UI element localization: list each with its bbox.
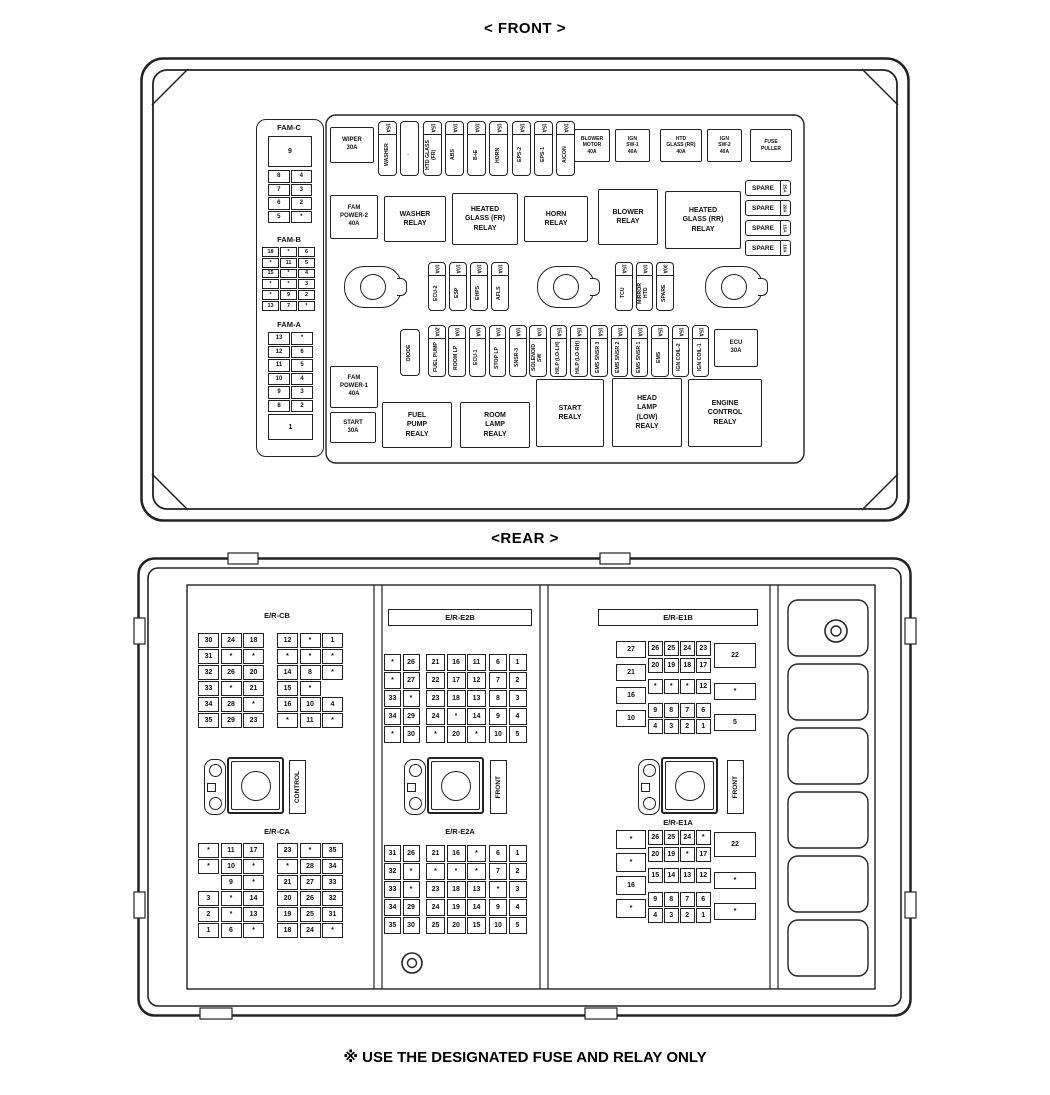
fuse: 15AHTD GLASS (FR) — [423, 121, 442, 176]
pin-cell: 9 — [489, 708, 507, 725]
fuse: 10AEMS SNSR 1 — [631, 325, 649, 377]
pin-cell: 34 — [384, 899, 401, 916]
grid-row: 33* — [384, 881, 420, 898]
pin-cell: 20 — [243, 665, 264, 680]
er-e1a-col-right: 22** — [714, 832, 756, 920]
fuse-amp: 15A — [424, 122, 441, 135]
pin-cell: * — [291, 332, 313, 345]
er-e2a-label: E/R-E2A — [388, 827, 532, 836]
fuse: 15AWASHER — [378, 121, 397, 176]
fuse-label: DIODE — [407, 330, 413, 375]
pin-cell: 21 — [426, 845, 445, 862]
fuse: 10AECU-1 — [469, 325, 487, 377]
blower-motor-fuse-box: BLOWER MOTOR 40A — [574, 129, 610, 162]
er-e2a-grid-2: 2116****231813241914252015 — [426, 845, 486, 934]
pin-cell: * — [384, 726, 401, 743]
pin-cell: 17 — [243, 843, 264, 858]
pin-cell: 11 — [221, 843, 242, 858]
grid-row: *1117 — [198, 843, 264, 858]
grid-row: 33*21 — [198, 681, 264, 696]
fuse-amp: 10A — [637, 263, 653, 276]
fuse-amp: 15A — [551, 326, 567, 339]
fuse: · — [400, 121, 419, 176]
spare-amp: 10A — [780, 241, 790, 255]
fam-c-big-cell: 9 — [268, 136, 312, 167]
fuse-label: SPARE — [662, 276, 668, 310]
bracket-hole-icon — [409, 764, 422, 777]
pin-cell: * — [384, 654, 401, 671]
pin-cell: 10 — [268, 373, 290, 386]
fuse-label: ECU-1 — [474, 339, 480, 376]
grid-row: 3530 — [384, 917, 420, 934]
er-e1a-label: E/R-E1A — [598, 818, 758, 827]
pin-cell: 16 — [616, 876, 646, 895]
pin-cell: 20 — [447, 917, 466, 934]
ign-sw2-fuse-box: IGN SW-2 40A — [707, 129, 742, 162]
pin-cell: 15 — [277, 681, 298, 696]
pin-cell: * — [426, 863, 445, 880]
pin-cell: 9 — [648, 703, 663, 718]
fuse: 10AROOM LP — [448, 325, 466, 377]
pin-cell: 6 — [298, 247, 315, 257]
pin-cell: 15 — [262, 269, 279, 279]
pin-cell: 23 — [426, 881, 445, 898]
pin-cell: * — [384, 672, 401, 689]
pin-cell: 17 — [696, 658, 711, 673]
pin-cell: 34 — [322, 859, 343, 874]
grid-row: 352923 — [198, 713, 264, 728]
pin-cell: * — [489, 881, 507, 898]
pin-cell: 23 — [426, 690, 445, 707]
pin-cell: 2 — [680, 908, 695, 923]
fuse: 30ASPARE — [656, 262, 674, 311]
grid-row: 126 — [268, 346, 313, 359]
fuse-amp: 10A — [446, 122, 463, 135]
pin-cell: 24 — [221, 633, 242, 648]
pin-cell: 12 — [268, 346, 290, 359]
front-label: FRONT — [495, 776, 502, 798]
er-ca-grid-right: 23*35*28342127332026321925311824* — [277, 843, 343, 938]
pin-cell: 2 — [198, 907, 219, 922]
pin-cell: 29 — [403, 708, 420, 725]
pin-cell: * — [262, 290, 279, 300]
pin-cell: * — [243, 923, 264, 938]
pin-cell: 24 — [680, 641, 695, 656]
pin-cell: * — [696, 830, 711, 845]
grid-row: 137* — [262, 301, 315, 311]
er-cb-grid-left: 30241831**32262033*213428*352923 — [198, 633, 264, 728]
grid-row: 4321 — [648, 908, 711, 923]
fuse: 15AHORN — [489, 121, 508, 176]
pin-cell: 26 — [648, 830, 663, 845]
fuse: 15AEMS — [651, 325, 669, 377]
grid-row: 231813 — [426, 881, 486, 898]
pin-cell: 12 — [696, 868, 711, 883]
grid-row: 262524* — [648, 830, 711, 845]
fuse-amp: 10A — [449, 326, 465, 339]
socket-hole-icon — [675, 771, 705, 801]
pin-cell: * — [277, 859, 298, 874]
fuse-label: · — [407, 134, 413, 175]
pin-cell: 10 — [489, 726, 507, 743]
fuse-label: B+E — [474, 135, 480, 175]
grid-row: 105 — [489, 726, 527, 743]
pin-cell: * — [300, 843, 321, 858]
er-ca-label: E/R-CA — [196, 827, 358, 836]
pin-cell: 8 — [489, 690, 507, 707]
pin-cell: 18 — [447, 881, 466, 898]
pin-cell: * — [447, 708, 466, 725]
fam-a-grid: 13*1261151049382 — [268, 332, 313, 412]
fuse: 10AABS — [445, 121, 464, 176]
pin-cell: 26 — [300, 891, 321, 906]
pin-cell: * — [243, 875, 264, 890]
pin-cell: 16 — [447, 845, 466, 862]
pin-cell: 22 — [714, 643, 756, 668]
pin-cell: 3 — [291, 184, 313, 197]
er-e2b-grid-3: 61728394105 — [489, 654, 527, 743]
grid-row: 2*13 — [198, 907, 264, 922]
grid-row: 93 — [268, 386, 313, 399]
pin-cell: 23 — [277, 843, 298, 858]
pin-cell: 1 — [696, 908, 711, 923]
grid-row: 26252423 — [648, 641, 711, 656]
pin-cell: 27 — [616, 641, 646, 658]
pin-cell: 26 — [403, 845, 420, 862]
fuse-amp: 15A — [673, 326, 689, 339]
pin-cell: 2 — [291, 197, 313, 210]
fuse-label: TCU — [621, 276, 627, 310]
pin-cell: * — [262, 279, 279, 289]
fuse-label: EPS-1 — [541, 135, 547, 175]
fuse-amp: 10A — [429, 263, 445, 276]
fuse-amp: 10A — [450, 263, 466, 276]
grid-row: **3 — [262, 279, 315, 289]
pin-cell: 24 — [300, 923, 321, 938]
pin-cell: 9 — [648, 892, 663, 907]
heated-glass-fr-relay-box: HEATED GLASS (FR) RELAY — [452, 193, 518, 245]
pin-cell: 10 — [221, 859, 242, 874]
pin-cell: * — [403, 881, 420, 898]
fuse: 15AH/LP (LO-LH) — [550, 325, 568, 377]
start-relay-box: START REALY — [536, 379, 604, 447]
grid-row: *26 — [384, 654, 420, 671]
grid-row: 3*14 — [198, 891, 264, 906]
spare-fuse: SPARE25A — [745, 180, 791, 196]
pin-cell: 32 — [198, 665, 219, 680]
pin-cell: 7 — [680, 892, 695, 907]
fuse: 15AEPS-2 — [512, 121, 531, 176]
fuse: 10AMIRROR HTD — [636, 262, 654, 311]
pin-cell: 2 — [291, 400, 313, 413]
fuse-amp: 10A — [510, 326, 526, 339]
pin-cell: * — [300, 649, 321, 664]
pin-cell: 8 — [664, 892, 679, 907]
pin-cell: 30 — [198, 633, 219, 648]
bracket-key-icon — [407, 783, 416, 792]
pin-cell: 29 — [221, 713, 242, 728]
pin-cell: 24 — [680, 830, 695, 845]
pin-cell: 31 — [322, 907, 343, 922]
fuse: 10AECU-2 — [428, 262, 446, 311]
pin-cell: 7 — [680, 703, 695, 718]
fuse-amp: 10A — [557, 122, 574, 135]
pin-cell: * — [403, 690, 420, 707]
pin-cell: 11 — [467, 654, 486, 671]
pin-cell: 25 — [664, 641, 679, 656]
pin-cell: 8 — [268, 170, 290, 183]
fuse-amp: 10A — [470, 326, 486, 339]
grid-row: 82 — [268, 400, 313, 413]
fuse-label: ESP — [455, 276, 461, 310]
er-e2b-grid-2: 21161122171223181324*14*20* — [426, 654, 486, 743]
grid-row: 13* — [268, 332, 313, 345]
control-label: CONTROL — [294, 771, 301, 803]
pin-cell: * — [664, 679, 679, 694]
pin-cell: * — [467, 845, 486, 862]
grid-row: 18*6 — [262, 247, 315, 257]
pin-cell: 5 — [298, 258, 315, 268]
socket-hole-icon — [441, 771, 471, 801]
fuse: 10ASOLENOID SW — [529, 325, 547, 377]
fuse: 15AEPS-1 — [534, 121, 553, 176]
fuse-label: H/LP (LO-RH) — [576, 339, 582, 376]
horn-relay-box: HORN RELAY — [524, 196, 588, 242]
spare-label: SPARE — [746, 181, 780, 195]
pin-cell: * — [467, 726, 486, 743]
pin-cell: 5 — [291, 359, 313, 372]
pin-cell: 23 — [243, 713, 264, 728]
grid-row: 212733 — [277, 875, 343, 890]
mid-fuse-strip-right: 15ATCU10AMIRROR HTD30ASPARE — [615, 262, 674, 311]
pin-cell: 33 — [384, 690, 401, 707]
pin-cell: 5 — [714, 714, 756, 731]
grid-row: 3429 — [384, 899, 420, 916]
pin-cell: 1 — [509, 845, 527, 862]
mounting-hole-icon — [537, 266, 595, 308]
mounting-hole-icon — [344, 266, 402, 308]
grid-row: 104 — [268, 373, 313, 386]
grid-row: 61 — [489, 654, 527, 671]
connector-bracket — [204, 759, 226, 815]
pin-cell: 7 — [268, 184, 290, 197]
grid-row: *11* — [277, 713, 343, 728]
spare-amp: 15A — [780, 221, 790, 235]
pin-cell: 2 — [509, 863, 527, 880]
fuse: 15AIGN COIL-1 — [692, 325, 710, 377]
pin-cell: 16 — [447, 654, 466, 671]
grid-row: 231813 — [426, 690, 486, 707]
pin-cell: 3 — [198, 891, 219, 906]
spare-fuse: SPARE15A — [745, 220, 791, 236]
pin-cell: 2 — [680, 719, 695, 734]
fuse-label: EPS-2 — [518, 135, 524, 175]
mid-fuse-strip-left: 10AECU-210AESP10AEHPS10AAFLS — [428, 262, 509, 311]
pin-cell: * — [714, 903, 756, 920]
pin-cell: 35 — [322, 843, 343, 858]
grid-row: 15*4 — [262, 269, 315, 279]
pin-cell: * — [198, 859, 219, 874]
pin-cell: * — [322, 649, 343, 664]
grid-row: 23*35 — [277, 843, 343, 858]
bracket-hole-icon — [409, 797, 422, 810]
pin-cell: * — [300, 633, 321, 648]
pin-cell: 9 — [221, 875, 242, 890]
spare-fuse: SPARE20A — [745, 200, 791, 216]
er-ca-grid-left: *1117*10*9*3*142*1316* — [198, 843, 264, 938]
fuse-label: IGN COIL-2 — [677, 339, 683, 376]
pin-cell: 4 — [648, 908, 663, 923]
grid-row: 202632 — [277, 891, 343, 906]
fuse-label: FUEL PUMP — [434, 339, 440, 376]
pin-cell: 4 — [648, 719, 663, 734]
engine-control-relay-box: ENGINE CONTROL REALY — [688, 379, 762, 447]
pin-cell: 28 — [221, 697, 242, 712]
grid-row: 15141312 — [648, 868, 711, 883]
pin-cell: 2 — [509, 672, 527, 689]
socket-hole-icon — [241, 771, 271, 801]
er-e1b-col-right: 22*5 — [714, 643, 756, 731]
pin-cell: 31 — [198, 649, 219, 664]
pin-cell: * — [243, 697, 264, 712]
fuse-amp: 20A — [429, 326, 445, 339]
pin-cell: 5 — [509, 917, 527, 934]
pin-cell: * — [616, 830, 646, 849]
front-label-box: FRONT — [490, 760, 507, 814]
pin-cell: 3 — [664, 719, 679, 734]
fuse-amp — [401, 122, 418, 134]
fuse-amp: 15A — [513, 122, 530, 135]
relay-socket — [227, 757, 284, 814]
pin-cell: 35 — [384, 917, 401, 934]
pin-cell: * — [322, 713, 343, 728]
grid-row: 20191817 — [648, 658, 711, 673]
pin-cell: 17 — [447, 672, 466, 689]
grid-row: 94 — [489, 708, 527, 725]
fuse-label: EHPS — [476, 276, 482, 310]
grid-row: 32* — [384, 863, 420, 880]
htd-glass-rr-fuse-box: HTD GLASS (RR) 40A — [660, 129, 702, 162]
pin-cell: 6 — [489, 845, 507, 862]
grid-row: 1824* — [277, 923, 343, 938]
fuse-amp: 10A — [612, 326, 628, 339]
er-cb-label: E/R-CB — [196, 611, 358, 620]
er-e1b-col-left: 27211610 — [616, 641, 646, 727]
grid-row: *92 — [262, 290, 315, 300]
grid-row: 3126 — [384, 845, 420, 862]
pin-cell: * — [680, 679, 695, 694]
pin-cell: 4 — [322, 697, 343, 712]
er-e2a-grid-3: 6172*394105 — [489, 845, 527, 934]
pin-cell: 33 — [198, 681, 219, 696]
ecu-30a-box: ECU 30A — [714, 329, 758, 367]
fuse-label: WASHER — [385, 135, 391, 175]
spare-amp: 20A — [780, 201, 790, 215]
er-e1a-grid-mid: 262524*2019*171514131298764321 — [648, 830, 711, 923]
pin-cell: 22 — [714, 832, 756, 857]
pin-cell: 20 — [447, 726, 466, 743]
pin-cell: 14 — [277, 665, 298, 680]
grid-row: 192531 — [277, 907, 343, 922]
grid-row: *** — [277, 649, 343, 664]
grid-row: 9876 — [648, 892, 711, 907]
fuse: 10AA/CON — [556, 121, 575, 176]
pin-cell: 6 — [291, 346, 313, 359]
pin-cell: 12 — [467, 672, 486, 689]
pin-cell: 9 — [280, 290, 297, 300]
er-e2b-label-box: E/R-E2B — [388, 609, 532, 626]
connector-bracket — [404, 759, 426, 815]
pin-cell: 19 — [664, 658, 679, 673]
fuse: 10ASTOP LP — [489, 325, 507, 377]
fuse-label: ECU-2 — [434, 276, 440, 310]
pin-cell: 13 — [243, 907, 264, 922]
spare-fuse-strip: SPARE25ASPARE20ASPARE15ASPARE10A — [745, 180, 791, 256]
heated-glass-rr-relay-box: HEATED GLASS (RR) RELAY — [665, 191, 741, 249]
fuse-label: EMS SNSR 2 — [616, 339, 622, 376]
fam-c-grid: 8473625* — [268, 170, 312, 223]
bracket-key-icon — [207, 783, 216, 792]
fuse-label: EMS SNSR 1 — [637, 339, 643, 376]
pin-cell: * — [322, 665, 343, 680]
er-e2b-grid-1: *26*2733*3429*30 — [384, 654, 420, 743]
pin-cell: 20 — [648, 658, 663, 673]
pin-cell: 25 — [664, 830, 679, 845]
pin-cell: 15 — [648, 868, 663, 883]
pin-cell: 5 — [268, 211, 290, 224]
pin-cell: 24 — [426, 899, 445, 916]
grid-row: 2116* — [426, 845, 486, 862]
pin-cell: 25 — [426, 917, 445, 934]
front-label-box: FRONT — [727, 760, 744, 814]
pin-cell: 7 — [489, 863, 507, 880]
rear-title: <REAR > — [0, 530, 1050, 547]
pin-cell: * — [221, 681, 242, 696]
grid-row: 4321 — [648, 719, 711, 734]
fuse-label: MIRROR HTD — [638, 276, 650, 310]
fuse-amp: 15A — [535, 122, 552, 135]
pin-cell: 1 — [322, 633, 343, 648]
pin-cell: 20 — [648, 847, 663, 862]
grid-row: 84 — [268, 170, 312, 183]
grid-row: 72 — [489, 863, 527, 880]
spare-fuse: SPARE10A — [745, 240, 791, 256]
pin-cell: * — [221, 891, 242, 906]
pin-cell: 10 — [489, 917, 507, 934]
pin-cell: * — [447, 863, 466, 880]
pin-cell: 29 — [403, 899, 420, 916]
grid-row: 322620 — [198, 665, 264, 680]
start-30a-box: START 30A — [330, 412, 376, 443]
fuse: 10ASNSR-3 — [509, 325, 527, 377]
pin-cell: 14 — [243, 891, 264, 906]
pin-cell: 7 — [280, 301, 297, 311]
pin-cell: 15 — [467, 917, 486, 934]
pin-cell: 8 — [664, 703, 679, 718]
pin-cell: 13 — [262, 301, 279, 311]
fam-power1-box: FAM POWER-1 40A — [330, 366, 378, 408]
fuse-amp: 15A — [652, 326, 668, 339]
front-label: FRONT — [732, 776, 739, 798]
grid-row: *27 — [384, 672, 420, 689]
er-e1b-grid-mid: 2625242320191817***1298764321 — [648, 641, 711, 734]
fuse: 10AAFLS — [491, 262, 509, 311]
grid-row: 94 — [489, 899, 527, 916]
fam-power2-box: FAM POWER-2 40A — [330, 195, 378, 239]
fuse-amp: 15A — [693, 326, 709, 339]
fuse-label: EMS — [657, 339, 663, 376]
fuse: 15AEMS SNSR 3 — [590, 325, 608, 377]
